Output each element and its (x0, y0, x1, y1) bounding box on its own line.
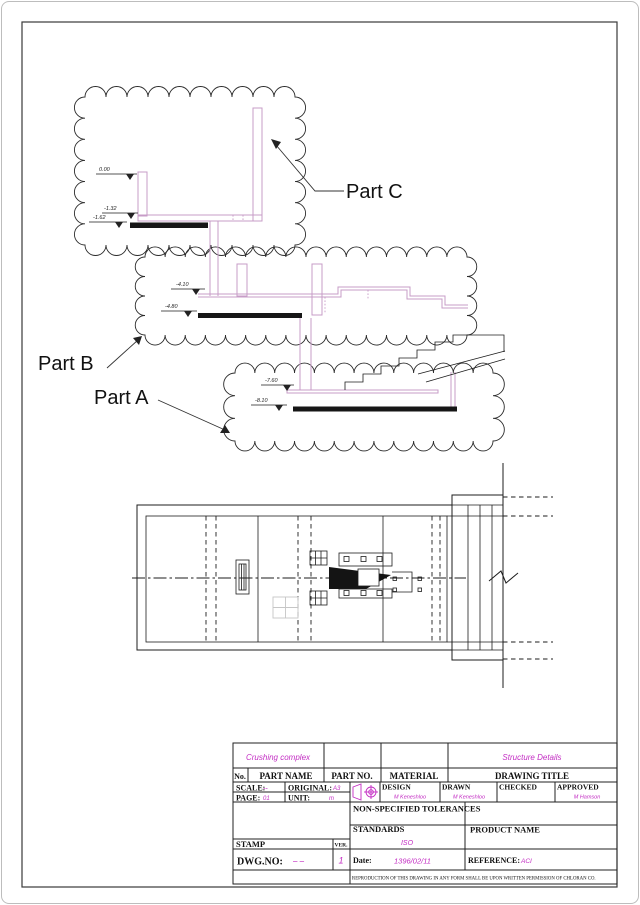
reference-value: ACI (520, 858, 532, 865)
scale-value: -- (263, 786, 268, 793)
original-label: ORIGINAL: (288, 784, 332, 793)
drawing-title-value: Structure Details (502, 753, 561, 762)
part-c-callout: Part C (271, 139, 403, 203)
drawn-label: DRAWN (442, 783, 471, 792)
elevation-marker: -7.60 (261, 378, 294, 391)
unit-value: m (329, 796, 334, 802)
col-drawing-title: DRAWING TITLE (495, 771, 569, 781)
dwg-no-value: – – (292, 857, 305, 866)
equipment-grid-box (310, 591, 327, 605)
standards-label: STANDARDS (353, 824, 405, 834)
elevation-value: 0.00 (99, 167, 111, 173)
unit-label: UNIT: (288, 794, 310, 803)
leader-arrowhead (271, 139, 281, 149)
design-value: M Keneshloo (394, 795, 426, 801)
col-part-name: PART NAME (259, 771, 312, 781)
projection-symbol-icon (353, 784, 378, 800)
date-label: Date: (353, 856, 372, 865)
ver-value: 1 (339, 856, 344, 866)
elevation-marker: 0.00 (96, 167, 137, 180)
leader-arrowhead (220, 425, 230, 433)
plan-view (132, 463, 553, 688)
date-value: 1396/02/11 (394, 857, 431, 866)
page-value: 01 (263, 796, 270, 802)
elevation-marker: -8.10 (251, 398, 287, 411)
elevation-marker: -4.10 (171, 282, 205, 295)
elevation-value: -4.10 (176, 282, 189, 288)
col-material: MATERIAL (390, 771, 439, 781)
part-b-label: Part B (38, 353, 94, 375)
copyright-note: REPRODUCTION OF THIS DRAWING IN ANY FORM… (352, 877, 596, 882)
approved-label: APPROVED (557, 783, 599, 792)
col-no: No. (234, 772, 246, 781)
floor-opening-grid (273, 597, 298, 618)
cad-drawing-canvas: 0.00 -1.32 -1.62 -4.10 -4.80 -7.60 -8.10 (0, 0, 640, 905)
ver-label: VER. (335, 843, 349, 849)
part-c-label: Part C (346, 181, 403, 203)
stamp-label: STAMP (236, 839, 265, 849)
part-a-label: Part A (94, 387, 149, 409)
project-name: Crushing complex (246, 753, 311, 762)
elevation-value: -1.32 (104, 206, 117, 212)
elevation-marker: -1.62 (89, 215, 127, 228)
approved-value: M Hamson (574, 795, 601, 801)
scale-label: SCALE: (236, 784, 265, 793)
product-name-label: PRODUCT NAME (470, 825, 540, 835)
concrete-slab (293, 407, 457, 412)
detail-c-section (130, 108, 262, 296)
elevation-value: -7.60 (265, 378, 278, 384)
concrete-slab (130, 223, 208, 229)
title-block: Crushing complex Structure Details No. P… (233, 743, 617, 884)
elevation-marker: -1.32 (102, 206, 138, 219)
col-part-no: PART NO. (331, 771, 372, 781)
design-label: DESIGN (382, 783, 411, 792)
elevation-value: -8.10 (255, 398, 268, 404)
reference-label: REFERENCE: (468, 856, 520, 865)
elevation-value: -4.80 (165, 304, 178, 310)
original-value: A3 (332, 786, 341, 792)
detail-a-section (287, 335, 505, 412)
concrete-slab (198, 313, 302, 318)
dwg-no-label: DWG.NO: (237, 857, 283, 868)
equipment-hatched-column (236, 560, 249, 594)
standards-value: ISO (401, 840, 414, 847)
crusher-machine (329, 553, 422, 598)
part-a-callout: Part A (94, 387, 230, 433)
page-label: PAGE: (236, 794, 260, 803)
stair-profile (345, 335, 505, 390)
elevation-marker: -4.80 (161, 304, 197, 317)
elevation-value: -1.62 (93, 215, 106, 221)
equipment-grid-box (310, 551, 327, 565)
tolerances-label: NON-SPECIFIED TOLERANCES (353, 804, 481, 814)
drawn-value: M Keneshloo (453, 795, 485, 801)
checked-label: CHECKED (499, 783, 538, 792)
part-b-callout: Part B (38, 336, 142, 375)
drawing-sheet-page: 0.00 -1.32 -1.62 -4.10 -4.80 -7.60 -8.10 (0, 0, 640, 905)
